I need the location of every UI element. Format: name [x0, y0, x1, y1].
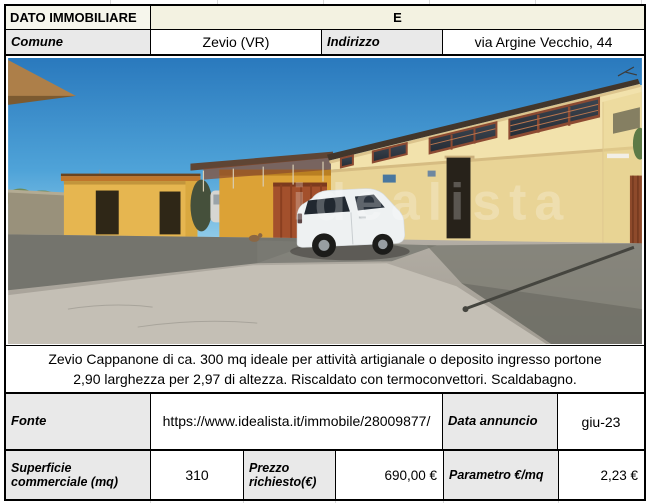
left-building — [61, 173, 201, 236]
property-photo: idealista — [6, 56, 644, 346]
doorway — [160, 191, 181, 234]
property-datasheet: DATO IMMOBILIARE E Comune Zevio (VR) Ind… — [0, 0, 650, 503]
fonte-url: https://www.idealista.it/immobile/280098… — [151, 394, 443, 449]
metrics-row: Superficie commerciale (mq) 310 Prezzo r… — [6, 451, 644, 499]
prezzo-label: Prezzo richiesto(€) — [244, 451, 336, 499]
property-photo-illustration: idealista — [8, 58, 642, 344]
doorway — [96, 190, 119, 234]
indirizzo-value: via Argine Vecchio, 44 — [443, 30, 644, 54]
boundary-wall — [8, 191, 66, 240]
description-line1: Zevio Cappanone di ca. 300 mq ideale per… — [6, 349, 644, 369]
prezzo-value: 690,00 € — [336, 451, 444, 499]
datasheet-table: DATO IMMOBILIARE E Comune Zevio (VR) Ind… — [4, 4, 646, 501]
energy-class-value: E — [151, 6, 644, 29]
datasheet-title: DATO IMMOBILIARE — [6, 6, 151, 29]
awning — [607, 153, 629, 157]
tree-silhouette — [190, 179, 212, 231]
location-row: Comune Zevio (VR) Indirizzo via Argine V… — [6, 30, 644, 56]
data-annuncio-label: Data annuncio — [443, 394, 558, 449]
idealista-watermark: idealista — [292, 172, 571, 230]
description-line2: 2,90 larghezza per 2,97 di altezza. Risc… — [6, 369, 644, 389]
comune-label: Comune — [6, 30, 151, 54]
superficie-label: Superficie commerciale (mq) — [6, 451, 151, 499]
superficie-value: 310 — [151, 451, 244, 499]
header-row: DATO IMMOBILIARE E — [6, 6, 644, 30]
fonte-label: Fonte — [6, 394, 151, 449]
description-row: Zevio Cappanone di ca. 300 mq ideale per… — [6, 346, 644, 394]
parametro-value: 2,23 € — [559, 451, 644, 499]
comune-value: Zevio (VR) — [151, 30, 322, 54]
data-annuncio-value: giu-23 — [558, 394, 644, 449]
source-row: Fonte https://www.idealista.it/immobile/… — [6, 394, 644, 451]
right-rust-gate — [630, 175, 642, 249]
parametro-label: Parametro €/mq — [444, 451, 559, 499]
indirizzo-label: Indirizzo — [322, 30, 443, 54]
